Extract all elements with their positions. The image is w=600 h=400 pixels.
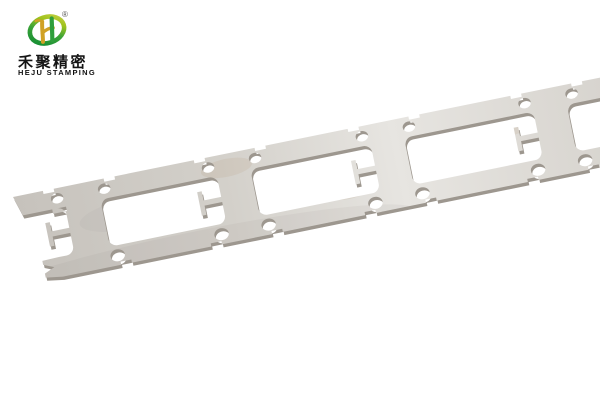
brand-name-english: HEJU STAMPING	[18, 68, 96, 77]
heju-logo-mark-icon	[16, 6, 80, 52]
metal-stamping-strip-photo	[0, 0, 600, 400]
registered-trademark-icon: ®	[62, 10, 68, 19]
product-photo-canvas: ® 禾聚精密 HEJU STAMPING	[0, 0, 600, 400]
